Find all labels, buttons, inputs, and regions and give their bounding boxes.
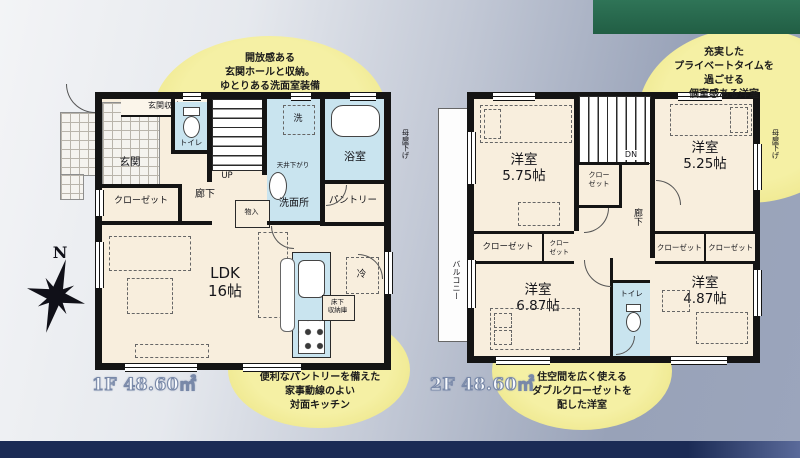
toilet-bowl-icon-2f [626,312,641,332]
floor2-plan: バルコニー 洋室 5.75帖 DN クロー ゼット 廊下 洋室 5.25帖 クロ… [438,92,762,370]
wall [619,165,622,207]
moya-sage-label-1f: 母屋下げ [396,112,410,176]
tv-board-outline [135,344,209,358]
table-outline [127,278,173,314]
chair-outline-487 [662,290,690,312]
window [95,242,104,288]
genkan-label: 玄関 [105,156,155,169]
green-accent-bar [593,0,800,34]
closet-label-1f: クローゼット [104,196,178,207]
closet-487-b: クローゼット [706,234,755,261]
stairs-up-label: UP [213,171,241,181]
stair-closet-label: クロー ゼット [580,171,618,190]
wall [325,180,384,184]
pillow-outline-687a [494,313,512,328]
navy-footer-bar [0,441,800,458]
room-575-label: 洋室 5.75帖 [484,152,564,184]
wall [178,184,182,225]
window [671,356,727,365]
wall [171,150,212,154]
bathroom-label: 浴室 [333,150,377,163]
pillow-outline-687b [494,330,512,345]
closet-487-a: クローゼット [655,234,704,261]
storage-label: 物入 [236,208,267,216]
ldk-label: LDK 16帖 [195,264,255,300]
room-525-label: 洋室 5.25帖 [665,140,745,172]
pillow-outline-525 [730,107,748,133]
staircase-up [212,99,264,171]
wall [267,221,320,225]
toilet-tank-icon-2f [626,304,641,312]
closet-687-b: クロー ゼット [544,234,574,261]
window [493,92,535,101]
window [95,190,104,216]
wall [182,221,212,225]
wall [102,184,182,188]
stove-icon [298,320,325,354]
wall [320,222,384,226]
toilet-bowl-icon [183,116,200,138]
window [753,144,762,190]
underfloor-storage-label: 床下 収納庫 [322,298,353,315]
hallway-label-2f: 廊下 [628,195,642,239]
pillow-outline-575 [484,109,501,139]
callout-text-top-left: 開放感ある 玄関ホールと収納。 ゆとりある洗面室装備 [172,52,368,94]
floor2-area-label: 2F 48.60㎡ [430,370,535,395]
wall [102,221,182,225]
desk-outline-575 [518,202,560,226]
window [496,356,550,365]
callout-text-bottom-left: 便利なパントリーを備えた 家事動線のよい 対面キッチン [232,371,408,413]
stairs-down-label: DN [618,150,644,160]
floor1-area-label: 1F 48.60㎡ [92,370,197,395]
moya-sage-label-2f: 母屋下げ [766,112,780,176]
floor1-plan: 玄関収納 玄関 トイレ UP 洗 天井下がり 洗面所 浴室 パントリー クローゼ… [95,92,391,370]
washing-machine-label: 洗 [283,114,313,125]
kitchen-sink-icon [298,260,325,298]
ceiling-drop-label: 天井下がり [266,162,320,170]
toilet-label-1f: トイレ [173,138,209,147]
window [753,270,762,316]
sofa-outline [109,236,191,271]
window [467,132,476,184]
bathtub-icon [331,105,380,137]
desk-outline-487 [696,312,748,344]
closet-687-a: クローゼット [474,234,542,261]
sink-icon [269,172,287,200]
washroom-label: 洗面所 [269,198,319,210]
balcony-label: バルコニー [445,242,461,318]
closet-band-687: クローゼット クロー ゼット [474,231,574,264]
compass-rose-icon: N [16,242,102,342]
toilet-tank-icon [183,107,200,116]
closet-band-487: クローゼット クローゼット [655,231,755,264]
island-counter [280,258,295,332]
window [384,252,393,294]
entrance-door-arc [66,84,95,113]
compass-north-label: N [53,243,68,262]
entrance-porch-step [60,174,84,200]
window [467,260,476,308]
entrance-porch-tiles [60,112,100,176]
hallway-label-1f: 廊下 [188,189,222,201]
floorplan-image: 開放感ある 玄関ホールと収納。 ゆとりある洗面室装備 充実した プライベートタイ… [0,0,800,458]
callout-text-top-right: 充実した プライベートタイムを 過ごせる 個室感ある洋室 [644,46,800,102]
toilet-label-2f: トイレ [614,289,649,298]
